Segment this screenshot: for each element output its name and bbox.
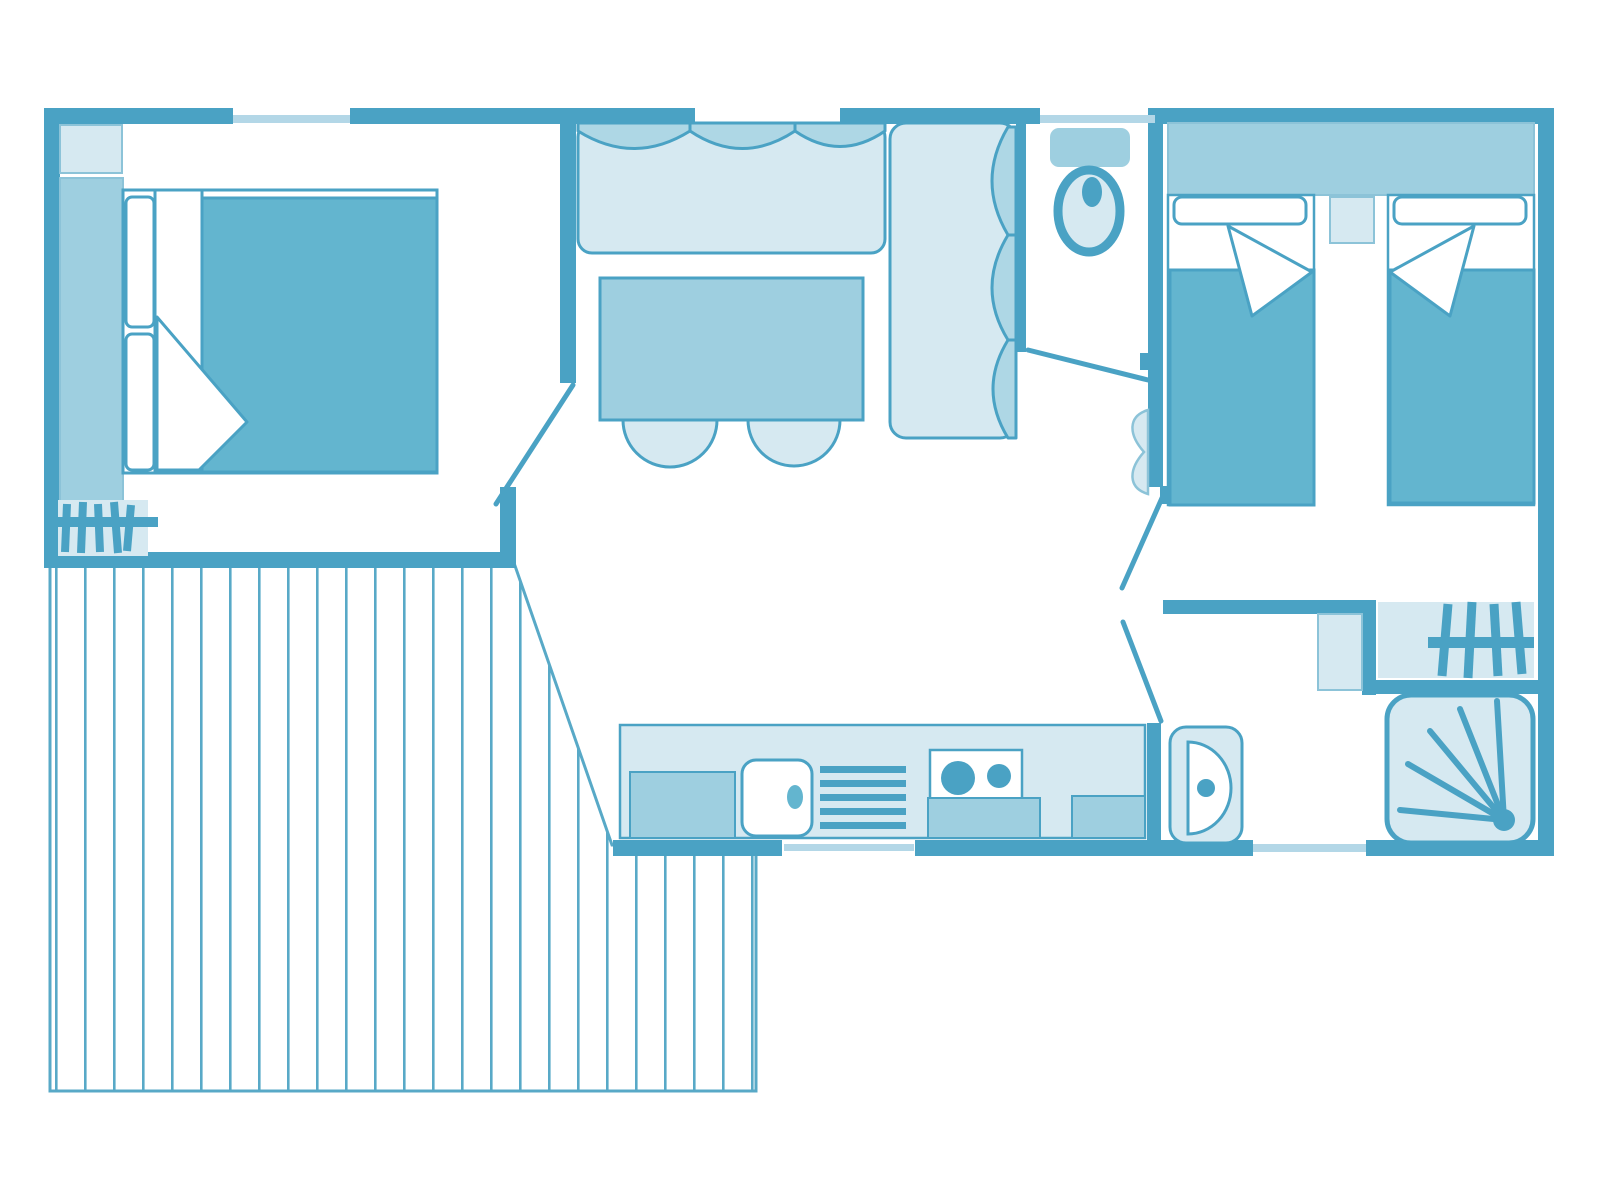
wall-kitchen-bottom-a (613, 840, 782, 856)
wall-top-d (1155, 108, 1554, 124)
living-dining (578, 123, 1016, 467)
wardrobe-strip (60, 178, 123, 508)
single-bed-right (1388, 195, 1534, 505)
sofa-cushions-top (578, 123, 885, 149)
mat-crossbar (54, 517, 158, 527)
pillow (1174, 197, 1306, 224)
bath-door-swing (1123, 622, 1161, 721)
wall-top-a (44, 108, 233, 124)
pillow (1394, 197, 1526, 224)
toilet-cistern (1050, 128, 1130, 167)
twin-door-leaf (1132, 410, 1148, 494)
wall-bath-top (1163, 600, 1367, 614)
sofa-cushions-side (992, 127, 1016, 438)
sink-tap (787, 785, 803, 809)
burner-large (941, 761, 975, 795)
floor-plan-canvas (0, 0, 1600, 1200)
window-wc (1040, 115, 1155, 123)
pillow (126, 197, 154, 327)
shower (1387, 695, 1533, 843)
shower-drain (1493, 809, 1515, 831)
base-unit-left (630, 772, 735, 838)
bedroom-door-swing (496, 385, 573, 504)
headboard-band (1168, 123, 1534, 195)
duvet (1170, 270, 1314, 505)
window-bath (1253, 844, 1366, 852)
shower-room (1170, 602, 1534, 843)
stool (623, 420, 717, 467)
nightstand (1330, 197, 1374, 243)
wall-left (44, 108, 60, 568)
mat-bar (81, 502, 83, 553)
wall-bedroom-stub (500, 487, 516, 568)
wall-bath-lower (1373, 680, 1543, 694)
washbasin-drain (1197, 779, 1215, 797)
double-bed (123, 190, 437, 473)
entry-door-threshold (784, 844, 914, 851)
kitchen (620, 725, 1145, 838)
shelf (60, 125, 122, 173)
master-bedroom (54, 125, 573, 556)
dining-table (600, 278, 863, 420)
base-unit-right (1072, 796, 1145, 838)
hatched-mat-bedroom (54, 500, 158, 556)
wall-bedroom-partition (560, 124, 576, 383)
wall-wc-jamb (1140, 353, 1148, 370)
wall-kitchen-bottom-b (915, 840, 1161, 856)
twin-door-swing (1122, 489, 1166, 588)
mat-bar (114, 502, 118, 553)
burner-small (987, 764, 1011, 788)
wall-twin-left (1148, 108, 1163, 487)
wall-washroom-left (1147, 723, 1161, 856)
hatched-mat-bath (1378, 602, 1534, 678)
toilet-seat-hinge (1082, 177, 1102, 207)
floor-plan-drawing (0, 0, 1600, 1200)
mat-bar (127, 505, 131, 551)
mat-bar (65, 504, 67, 552)
single-bed-left (1168, 195, 1314, 505)
wall-right (1538, 108, 1554, 856)
washbasin (1170, 727, 1242, 843)
duvet (1390, 270, 1534, 503)
window-bedroom (233, 115, 350, 123)
mat-crossbar (1428, 637, 1534, 648)
mat-bar (98, 504, 100, 552)
wc-door-swing (1028, 350, 1148, 380)
pillow (126, 334, 154, 470)
niche-shelf (1318, 614, 1362, 690)
wc (1028, 128, 1148, 380)
base-unit-center (928, 798, 1040, 838)
stool (748, 420, 840, 466)
